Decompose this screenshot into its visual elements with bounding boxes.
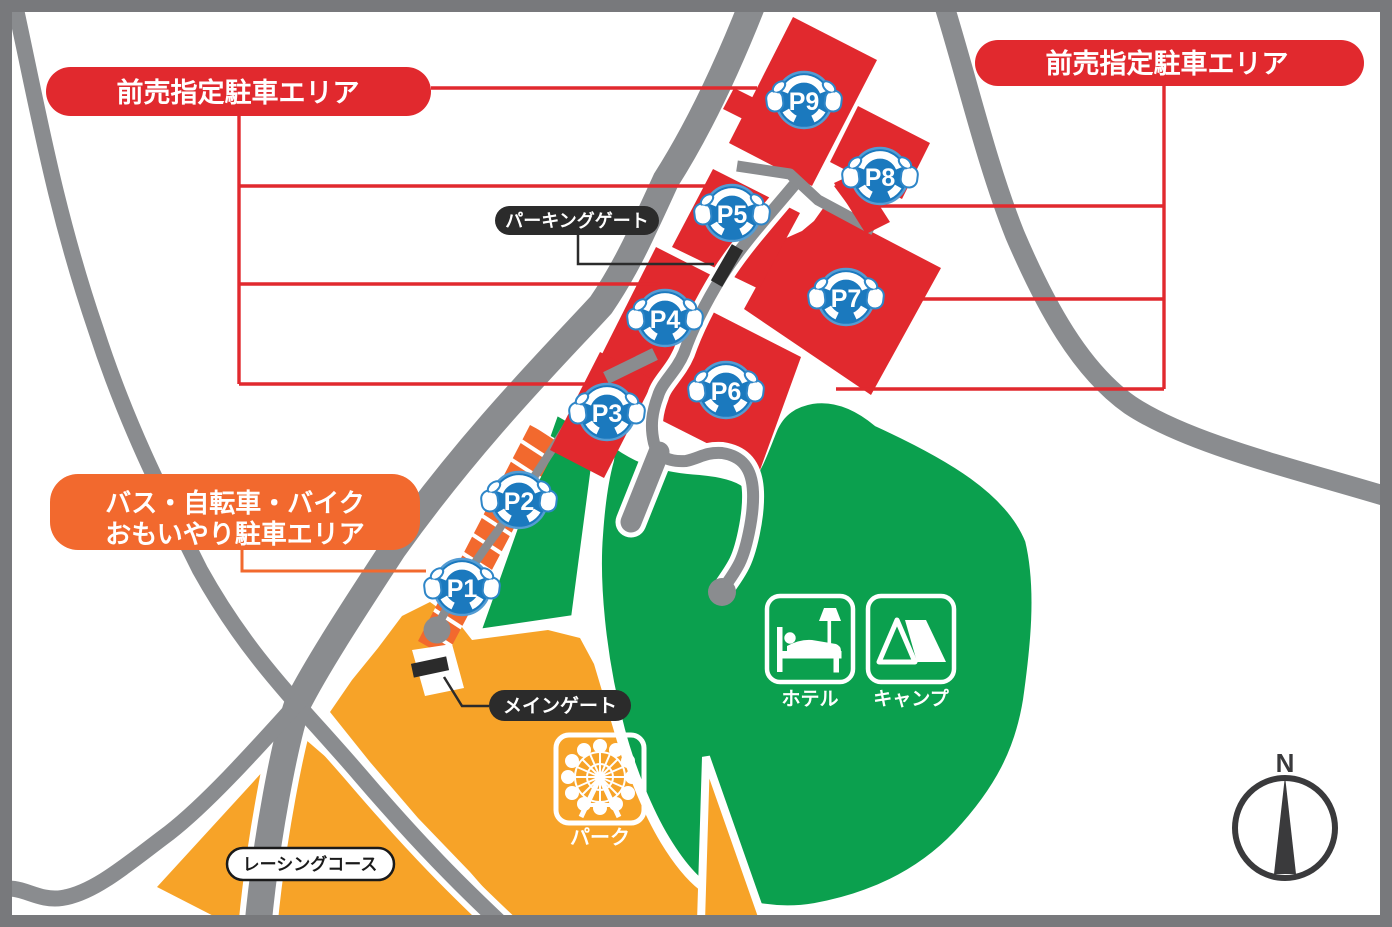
svg-text:P3: P3	[592, 400, 623, 428]
svg-text:P7: P7	[831, 285, 862, 313]
svg-text:パーキングゲート: パーキングゲート	[505, 210, 648, 231]
svg-text:P6: P6	[711, 378, 742, 406]
svg-text:P1: P1	[447, 575, 478, 603]
svg-text:ホテル: ホテル	[781, 689, 838, 710]
svg-text:パーク: パーク	[570, 826, 630, 849]
svg-text:N: N	[1276, 748, 1295, 778]
svg-text:前売指定駐車エリア: 前売指定駐車エリア	[1046, 48, 1289, 79]
svg-text:おもいやり駐車エリア: おもいやり駐車エリア	[105, 519, 364, 549]
svg-text:P8: P8	[865, 164, 896, 192]
svg-text:メインゲート: メインゲート	[503, 695, 617, 717]
svg-text:キャンプ: キャンプ	[873, 687, 949, 710]
svg-text:バス・自転車・バイク: バス・自転車・バイク	[105, 488, 364, 518]
svg-text:P4: P4	[650, 306, 681, 334]
svg-text:P5: P5	[717, 201, 748, 229]
svg-text:レーシングコース: レーシングコース	[243, 854, 378, 874]
svg-text:前売指定駐車エリア: 前売指定駐車エリア	[117, 77, 360, 108]
svg-text:P2: P2	[504, 488, 535, 516]
svg-text:P9: P9	[789, 88, 820, 116]
